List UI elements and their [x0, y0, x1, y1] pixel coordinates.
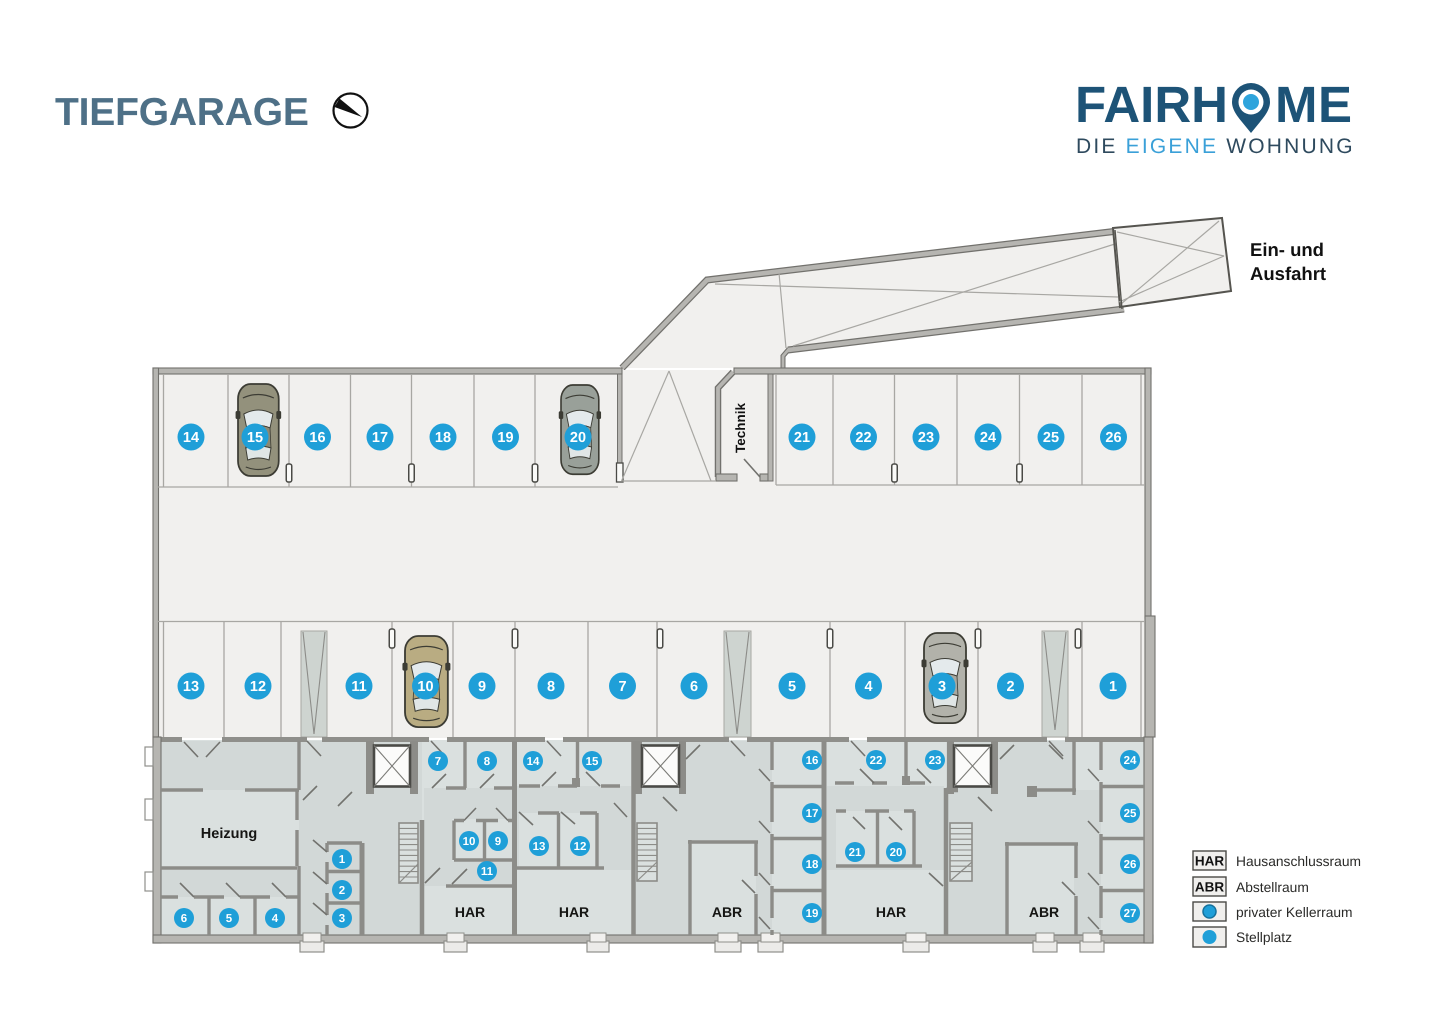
svg-text:Stellplatz: Stellplatz [1236, 930, 1292, 945]
svg-text:21: 21 [849, 847, 862, 859]
svg-text:11: 11 [351, 679, 366, 695]
svg-text:16: 16 [806, 755, 819, 767]
svg-text:15: 15 [586, 756, 599, 768]
svg-text:10: 10 [417, 679, 433, 695]
svg-text:privater Kellerraum: privater Kellerraum [1236, 905, 1353, 920]
svg-text:6: 6 [690, 679, 698, 695]
svg-text:4: 4 [864, 679, 872, 695]
svg-text:HAR: HAR [876, 904, 906, 920]
svg-text:8: 8 [484, 756, 491, 768]
svg-text:ME: ME [1275, 76, 1353, 133]
svg-text:Ausfahrt: Ausfahrt [1250, 263, 1326, 284]
svg-text:27: 27 [1124, 908, 1137, 920]
svg-text:25: 25 [1043, 430, 1059, 446]
svg-text:2: 2 [339, 885, 345, 897]
svg-text:22: 22 [870, 755, 883, 767]
svg-text:7: 7 [435, 756, 441, 768]
svg-text:20: 20 [570, 430, 586, 446]
svg-text:21: 21 [794, 430, 810, 446]
svg-text:26: 26 [1105, 430, 1121, 446]
svg-text:5: 5 [226, 913, 233, 925]
svg-text:12: 12 [574, 841, 587, 853]
svg-text:Abstellraum: Abstellraum [1236, 880, 1309, 895]
svg-text:13: 13 [533, 841, 546, 853]
svg-text:19: 19 [497, 430, 513, 446]
svg-text:22: 22 [855, 430, 871, 446]
svg-text:FAIRH: FAIRH [1075, 76, 1228, 133]
svg-text:25: 25 [1124, 808, 1137, 820]
svg-text:18: 18 [435, 430, 451, 446]
svg-text:24: 24 [1124, 755, 1137, 767]
svg-text:13: 13 [183, 679, 199, 695]
svg-text:HAR: HAR [559, 904, 589, 920]
svg-text:20: 20 [890, 847, 903, 859]
svg-text:26: 26 [1124, 859, 1137, 871]
svg-text:12: 12 [250, 679, 266, 695]
svg-text:7: 7 [618, 679, 626, 695]
svg-text:9: 9 [478, 679, 486, 695]
svg-text:18: 18 [806, 859, 819, 871]
svg-text:17: 17 [372, 430, 388, 446]
svg-text:15: 15 [247, 430, 263, 446]
svg-text:4: 4 [272, 913, 279, 925]
svg-text:ABR: ABR [1029, 904, 1059, 920]
svg-text:HAR: HAR [455, 904, 485, 920]
svg-text:DIE EIGENE WOHNUNG: DIE EIGENE WOHNUNG [1076, 135, 1355, 158]
svg-text:Heizung: Heizung [201, 826, 257, 842]
svg-text:19: 19 [806, 908, 819, 920]
svg-text:23: 23 [929, 755, 942, 767]
svg-text:3: 3 [339, 913, 345, 925]
svg-text:14: 14 [527, 756, 540, 768]
svg-text:9: 9 [495, 836, 501, 848]
svg-text:ABR: ABR [1195, 880, 1224, 895]
svg-text:17: 17 [806, 808, 819, 820]
svg-text:8: 8 [547, 679, 555, 695]
svg-text:16: 16 [309, 430, 325, 446]
svg-text:1: 1 [339, 854, 346, 866]
svg-text:3: 3 [938, 679, 946, 695]
svg-text:11: 11 [481, 866, 494, 878]
svg-text:5: 5 [788, 679, 796, 695]
svg-text:14: 14 [183, 430, 199, 446]
svg-text:Technik: Technik [733, 403, 748, 454]
svg-text:Hausanschlussraum: Hausanschlussraum [1236, 854, 1361, 869]
svg-text:TIEFGARAGE: TIEFGARAGE [55, 91, 309, 134]
svg-text:ABR: ABR [712, 904, 742, 920]
svg-text:6: 6 [181, 913, 187, 925]
svg-text:1: 1 [1109, 679, 1117, 695]
svg-text:23: 23 [918, 430, 934, 446]
svg-text:2: 2 [1006, 679, 1014, 695]
svg-text:Ein- und: Ein- und [1250, 239, 1324, 260]
svg-text:24: 24 [980, 430, 996, 446]
svg-text:HAR: HAR [1195, 854, 1224, 869]
svg-text:10: 10 [463, 836, 476, 848]
